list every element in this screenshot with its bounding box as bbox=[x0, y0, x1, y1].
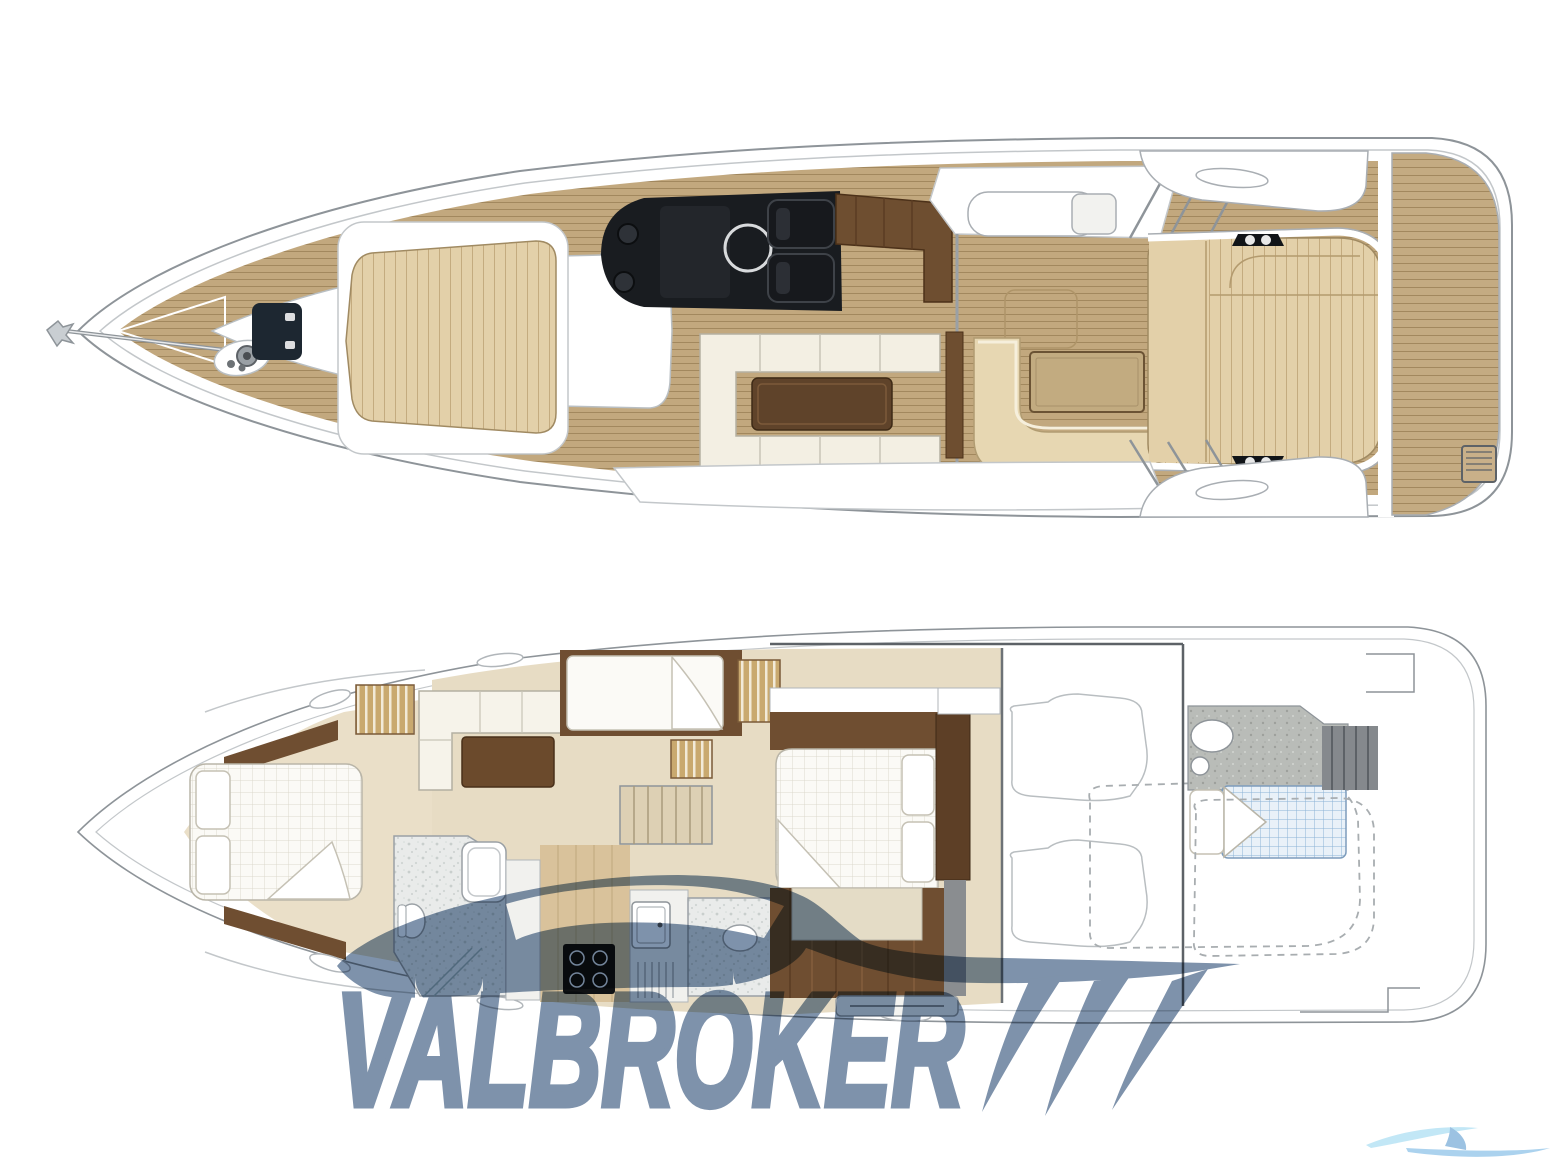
svg-text:VALBROKER: VALBROKER bbox=[336, 960, 964, 1139]
